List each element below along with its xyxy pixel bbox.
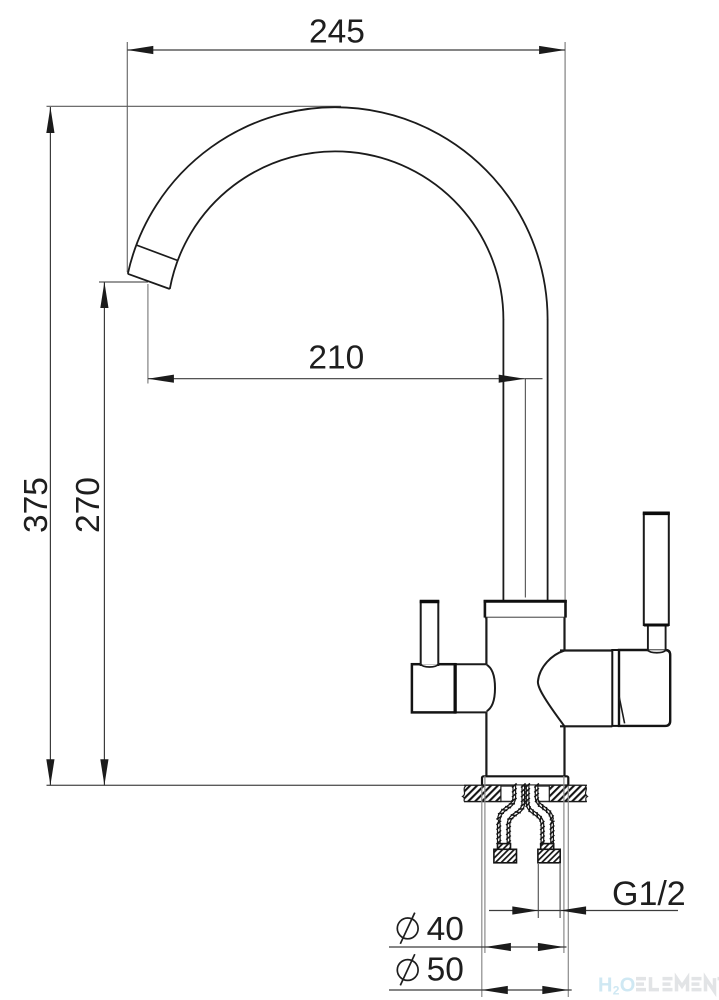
- svg-text:210: 210: [308, 340, 364, 377]
- svg-text:270: 270: [70, 477, 107, 533]
- svg-text:50: 50: [427, 951, 464, 988]
- svg-text:245: 245: [309, 14, 365, 51]
- svg-text:375: 375: [18, 477, 55, 533]
- svg-text:40: 40: [427, 911, 464, 948]
- svg-text:G1/2: G1/2: [612, 875, 686, 913]
